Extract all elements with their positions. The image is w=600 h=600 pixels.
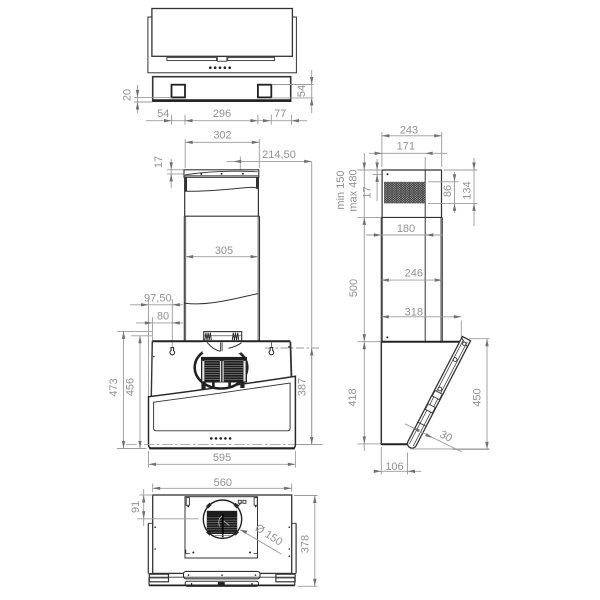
svg-text:77: 77 <box>274 108 286 120</box>
svg-text:86: 86 <box>442 185 454 197</box>
svg-text:171: 171 <box>397 141 415 153</box>
svg-text:560: 560 <box>214 477 232 489</box>
svg-text:20: 20 <box>122 89 134 101</box>
svg-text:180: 180 <box>397 223 415 235</box>
svg-text:246: 246 <box>405 267 423 279</box>
svg-text:54: 54 <box>157 108 169 120</box>
svg-text:450: 450 <box>471 388 483 406</box>
svg-text:473: 473 <box>108 378 120 396</box>
svg-text:17: 17 <box>153 156 165 168</box>
svg-text:243: 243 <box>400 124 418 136</box>
svg-text:595: 595 <box>213 452 231 464</box>
svg-text:305: 305 <box>215 245 233 257</box>
svg-text:max 480: max 480 <box>348 169 360 211</box>
svg-text:min 150: min 150 <box>335 170 347 209</box>
svg-text:134: 134 <box>462 181 474 199</box>
svg-text:97,50: 97,50 <box>144 293 172 305</box>
svg-text:418: 418 <box>347 388 359 406</box>
svg-text:91: 91 <box>130 501 142 513</box>
svg-text:80: 80 <box>157 311 169 323</box>
svg-text:378: 378 <box>299 535 311 553</box>
svg-text:456: 456 <box>124 378 136 396</box>
svg-text:500: 500 <box>348 279 360 297</box>
svg-text:387: 387 <box>296 378 308 396</box>
svg-text:318: 318 <box>405 307 423 319</box>
svg-text:296: 296 <box>213 108 231 120</box>
svg-text:214,50: 214,50 <box>262 149 296 161</box>
svg-text:54: 54 <box>296 85 308 97</box>
svg-text:106: 106 <box>385 461 403 473</box>
svg-text:302: 302 <box>213 130 231 142</box>
svg-text:17: 17 <box>361 186 373 198</box>
